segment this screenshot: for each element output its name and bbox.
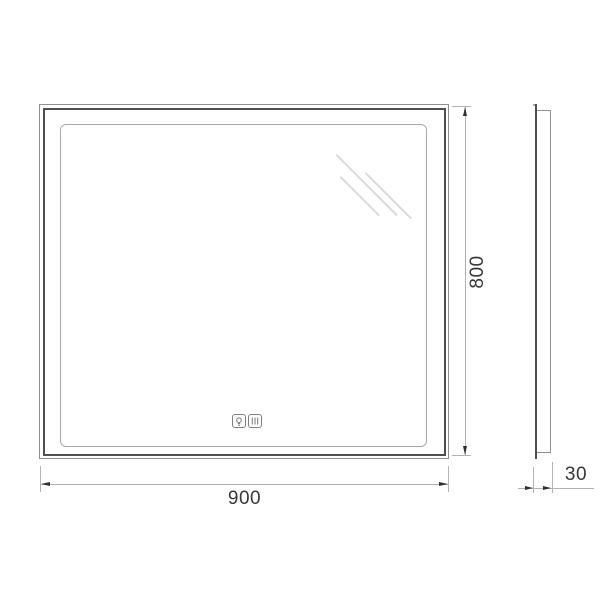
arrow-up-icon bbox=[463, 107, 467, 116]
width-dimension-line bbox=[40, 484, 449, 485]
arrow-right-icon bbox=[525, 486, 533, 490]
side-profile-body bbox=[537, 110, 551, 453]
height-extension-line-bottom bbox=[452, 455, 471, 456]
arrow-left-icon bbox=[41, 482, 50, 486]
mirror-led-outline bbox=[60, 124, 427, 447]
width-dimension-label: 900 bbox=[40, 489, 449, 509]
arrow-down-icon bbox=[463, 446, 467, 455]
arrow-right-icon bbox=[543, 486, 551, 490]
depth-dimension-label: 30 bbox=[556, 465, 596, 485]
height-dimension-line bbox=[465, 106, 466, 455]
defogger-icon bbox=[248, 414, 262, 428]
touch-controls bbox=[232, 414, 262, 428]
height-extension-line-top bbox=[452, 106, 471, 107]
depth-extension-line-left bbox=[533, 467, 534, 493]
technical-drawing-canvas: 900 800 30 bbox=[0, 0, 615, 600]
height-dimension-label: 800 bbox=[468, 252, 488, 292]
light-bulb-icon bbox=[232, 414, 246, 428]
arrow-right-icon bbox=[439, 482, 448, 486]
